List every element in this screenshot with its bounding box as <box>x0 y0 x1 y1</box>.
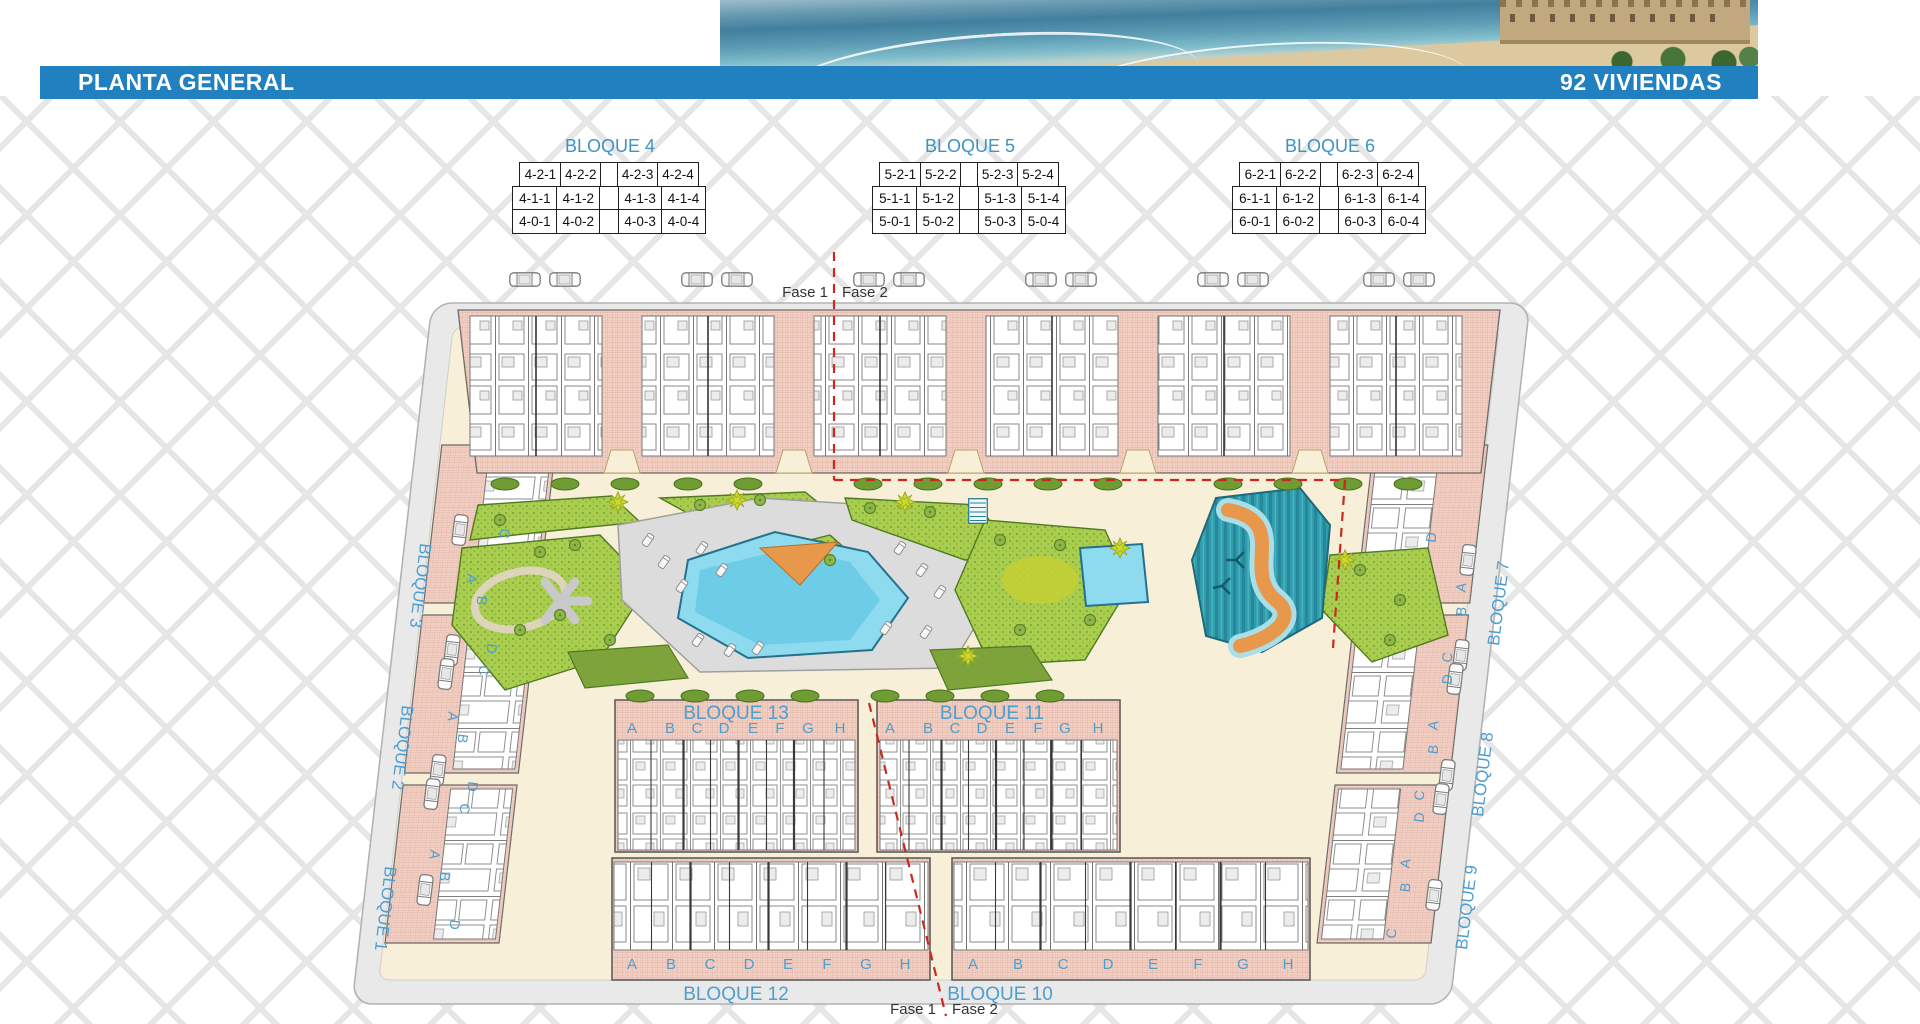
unit-letter: C <box>705 956 716 973</box>
side-unit-letter: C <box>1438 651 1455 663</box>
car-icon <box>1026 273 1056 286</box>
tree-icon <box>1085 615 1096 626</box>
unit-letter: H <box>900 956 911 973</box>
tree-icon <box>570 540 581 551</box>
bush <box>926 690 954 702</box>
tree-icon <box>1385 635 1396 646</box>
unit-letter: H <box>835 720 846 737</box>
side-unit-letter: C <box>1382 927 1399 939</box>
bush <box>736 690 764 702</box>
unit-letter: G <box>802 720 814 737</box>
car-icon <box>1432 783 1449 815</box>
label-bloque-12: BLOQUE 12 <box>683 984 789 1005</box>
car-icon <box>416 874 433 906</box>
car-icon <box>682 273 712 286</box>
palm-icon <box>895 492 915 512</box>
unit-letter: C <box>692 720 703 737</box>
fase2-label-bottom: Fase 2 <box>952 1001 998 1018</box>
unit-letter: E <box>1148 956 1158 973</box>
side-unit-letter: C <box>456 803 473 815</box>
tree-icon <box>515 625 526 636</box>
planta-general-page: { "header": { "title": "PLANTA GENERAL",… <box>0 0 1920 1024</box>
car-icon <box>1404 273 1434 286</box>
unit-letter: D <box>1103 956 1114 973</box>
unit-letter: A <box>627 720 637 737</box>
side-unit-letter: B <box>1453 606 1470 617</box>
tree-icon <box>925 507 936 518</box>
car-icon <box>1066 273 1096 286</box>
bush <box>871 690 899 702</box>
tree-icon <box>495 515 506 526</box>
tree-icon <box>825 555 836 566</box>
bush <box>551 478 579 490</box>
side-unit-letter: D <box>446 919 463 931</box>
tree-icon <box>1055 540 1066 551</box>
site-plan: BLOQUE 13 BLOQUE 11 BLOQUE 12 BLOQUE 10 … <box>0 0 1920 1024</box>
tree-icon <box>695 500 706 511</box>
palm-icon <box>958 646 978 666</box>
fase2-label-top: Fase 2 <box>842 284 888 301</box>
tree-icon <box>755 495 766 506</box>
unit-letter: D <box>744 956 755 973</box>
bush <box>491 478 519 490</box>
unit-letter: G <box>860 956 872 973</box>
unit-letter: C <box>950 720 961 737</box>
unit-letter: B <box>923 720 933 737</box>
side-unit-letter: C <box>1410 789 1427 801</box>
side-unit-letter: B <box>1397 882 1414 893</box>
bush <box>626 690 654 702</box>
side-unit-letter: D <box>464 781 481 793</box>
car-icon <box>423 778 440 810</box>
unit-letter: A <box>627 956 637 973</box>
side-unit-letter: C <box>496 528 513 540</box>
car-icon <box>1238 273 1268 286</box>
fase1-label-bottom: Fase 1 <box>890 1001 936 1018</box>
tree-icon <box>555 610 566 621</box>
side-unit-letter: B <box>436 871 453 882</box>
car-icon <box>510 273 540 286</box>
bush <box>681 690 709 702</box>
unit-letter: H <box>1283 956 1294 973</box>
car-icon <box>550 273 580 286</box>
unit-letter: F <box>775 720 784 737</box>
side-unit-letter: D <box>1438 673 1455 685</box>
palm-icon <box>608 492 628 512</box>
tree-icon <box>1015 625 1026 636</box>
unit-letter: E <box>1005 720 1015 737</box>
unit-letter: F <box>822 956 831 973</box>
tree-icon <box>1355 565 1366 576</box>
side-unit-letter: B <box>1425 744 1442 755</box>
unit-letter: G <box>1059 720 1071 737</box>
tree-icon <box>995 535 1006 546</box>
tree-icon <box>865 503 876 514</box>
unit-letter: G <box>1237 956 1249 973</box>
unit-letter: E <box>783 956 793 973</box>
tree-icon <box>535 547 546 558</box>
unit-letter: A <box>885 720 895 737</box>
unit-letter: B <box>666 956 676 973</box>
car-icon <box>722 273 752 286</box>
bush <box>1394 478 1422 490</box>
palm-icon <box>727 490 747 510</box>
unit-letter: F <box>1033 720 1042 737</box>
side-unit-letter: D <box>1410 811 1427 823</box>
side-unit-letter: B <box>473 595 490 606</box>
car-icon <box>1364 273 1394 286</box>
unit-letter: C <box>1058 956 1069 973</box>
stairs-icon <box>969 499 988 524</box>
unit-letter: B <box>1013 956 1023 973</box>
top-building-row <box>458 310 1500 473</box>
palm-icon <box>1110 538 1130 558</box>
tree-icon <box>1395 595 1406 606</box>
side-unit-letter: D <box>1422 531 1439 543</box>
unit-letter: D <box>719 720 730 737</box>
unit-letter: B <box>665 720 675 737</box>
car-icon <box>451 514 468 546</box>
unit-letter: E <box>748 720 758 737</box>
fase1-label-top: Fase 1 <box>782 284 828 301</box>
side-unit-letter: B <box>454 733 471 744</box>
bush <box>611 478 639 490</box>
unit-letter: H <box>1093 720 1104 737</box>
bush <box>1036 690 1064 702</box>
bush <box>791 690 819 702</box>
tree-icon <box>605 635 616 646</box>
unit-letter: D <box>977 720 988 737</box>
car-icon <box>894 273 924 286</box>
car-icon <box>1425 879 1442 911</box>
car-icon <box>1459 544 1476 576</box>
car-icon <box>1198 273 1228 286</box>
lawn-patch <box>1002 556 1078 604</box>
bush <box>674 478 702 490</box>
bush <box>981 690 1009 702</box>
side-unit-letter: D <box>483 643 500 655</box>
unit-letter: F <box>1193 956 1202 973</box>
bush <box>734 478 762 490</box>
side-unit-letter: C <box>475 665 492 677</box>
unit-letter: A <box>968 956 978 973</box>
car-icon <box>437 658 454 690</box>
